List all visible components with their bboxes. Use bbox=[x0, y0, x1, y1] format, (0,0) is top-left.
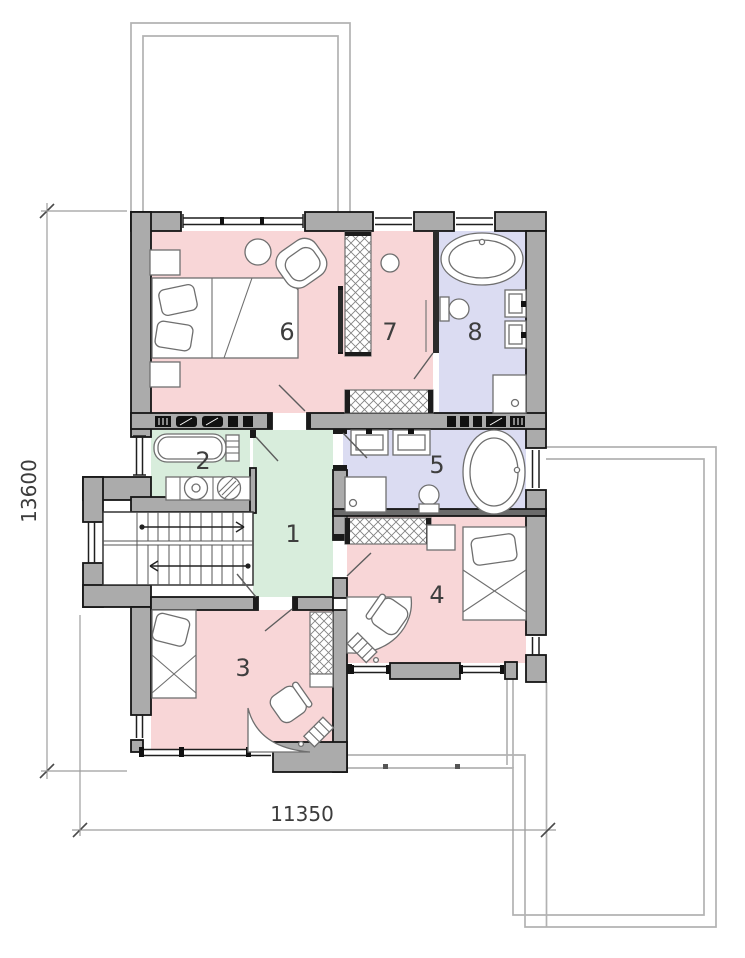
floor-plan-drawing: 13600 11350 bbox=[0, 0, 745, 958]
rail-post bbox=[455, 764, 460, 769]
room1-floor bbox=[253, 430, 333, 597]
sink-icon bbox=[505, 321, 526, 348]
shower-icon bbox=[493, 375, 526, 413]
wall-unit-icon bbox=[447, 416, 456, 427]
toilet-icon bbox=[419, 485, 439, 513]
top-balcony-inner-rail bbox=[143, 36, 338, 212]
room5-label: 5 bbox=[429, 451, 444, 479]
nightstand-icon bbox=[150, 362, 180, 387]
toilet-icon bbox=[440, 297, 469, 321]
room2-label: 2 bbox=[195, 447, 210, 475]
wardrobe-icon bbox=[345, 232, 371, 356]
wall-unit-icon bbox=[473, 416, 482, 427]
nightstand-icon bbox=[427, 525, 455, 550]
oval-bathtub-icon bbox=[441, 233, 523, 285]
room8-label: 8 bbox=[467, 318, 482, 346]
room7-label: 7 bbox=[382, 318, 397, 346]
wall-unit-icon bbox=[228, 416, 238, 427]
wall-unit-icon bbox=[460, 416, 469, 427]
single-bed-icon bbox=[463, 527, 526, 620]
stairs-icon bbox=[103, 512, 253, 585]
top-balcony-outer-rail bbox=[131, 23, 350, 212]
height-dimension-label: 13600 bbox=[17, 459, 41, 523]
double-bed-icon bbox=[152, 278, 298, 358]
wardrobe-icon bbox=[310, 612, 333, 687]
room4-label: 4 bbox=[429, 581, 444, 609]
wardrobe-icon bbox=[345, 390, 433, 413]
wardrobe-icon bbox=[345, 518, 431, 544]
single-bed-icon bbox=[151, 610, 196, 698]
room7-room8-partition bbox=[433, 231, 439, 353]
stool-icon bbox=[381, 254, 399, 272]
round-table-icon bbox=[245, 239, 271, 265]
floor-plan-canvas: 13600 11350 bbox=[0, 0, 745, 958]
rail-post bbox=[383, 764, 388, 769]
sink-icon bbox=[505, 290, 526, 317]
room6-room7-partition bbox=[338, 290, 343, 352]
room1-label: 1 bbox=[285, 520, 300, 548]
sink-icon bbox=[393, 429, 430, 455]
shower-icon bbox=[345, 477, 386, 512]
dryer-icon bbox=[218, 477, 241, 500]
washing-machine-icon bbox=[185, 477, 208, 500]
width-dimension-label: 11350 bbox=[270, 802, 334, 826]
sink-icon bbox=[351, 429, 388, 455]
wall-unit-icon bbox=[243, 416, 253, 427]
room6-label: 6 bbox=[279, 318, 294, 346]
room3-label: 3 bbox=[235, 654, 250, 682]
oval-bathtub-icon bbox=[463, 430, 525, 514]
nightstand-icon bbox=[150, 250, 180, 275]
